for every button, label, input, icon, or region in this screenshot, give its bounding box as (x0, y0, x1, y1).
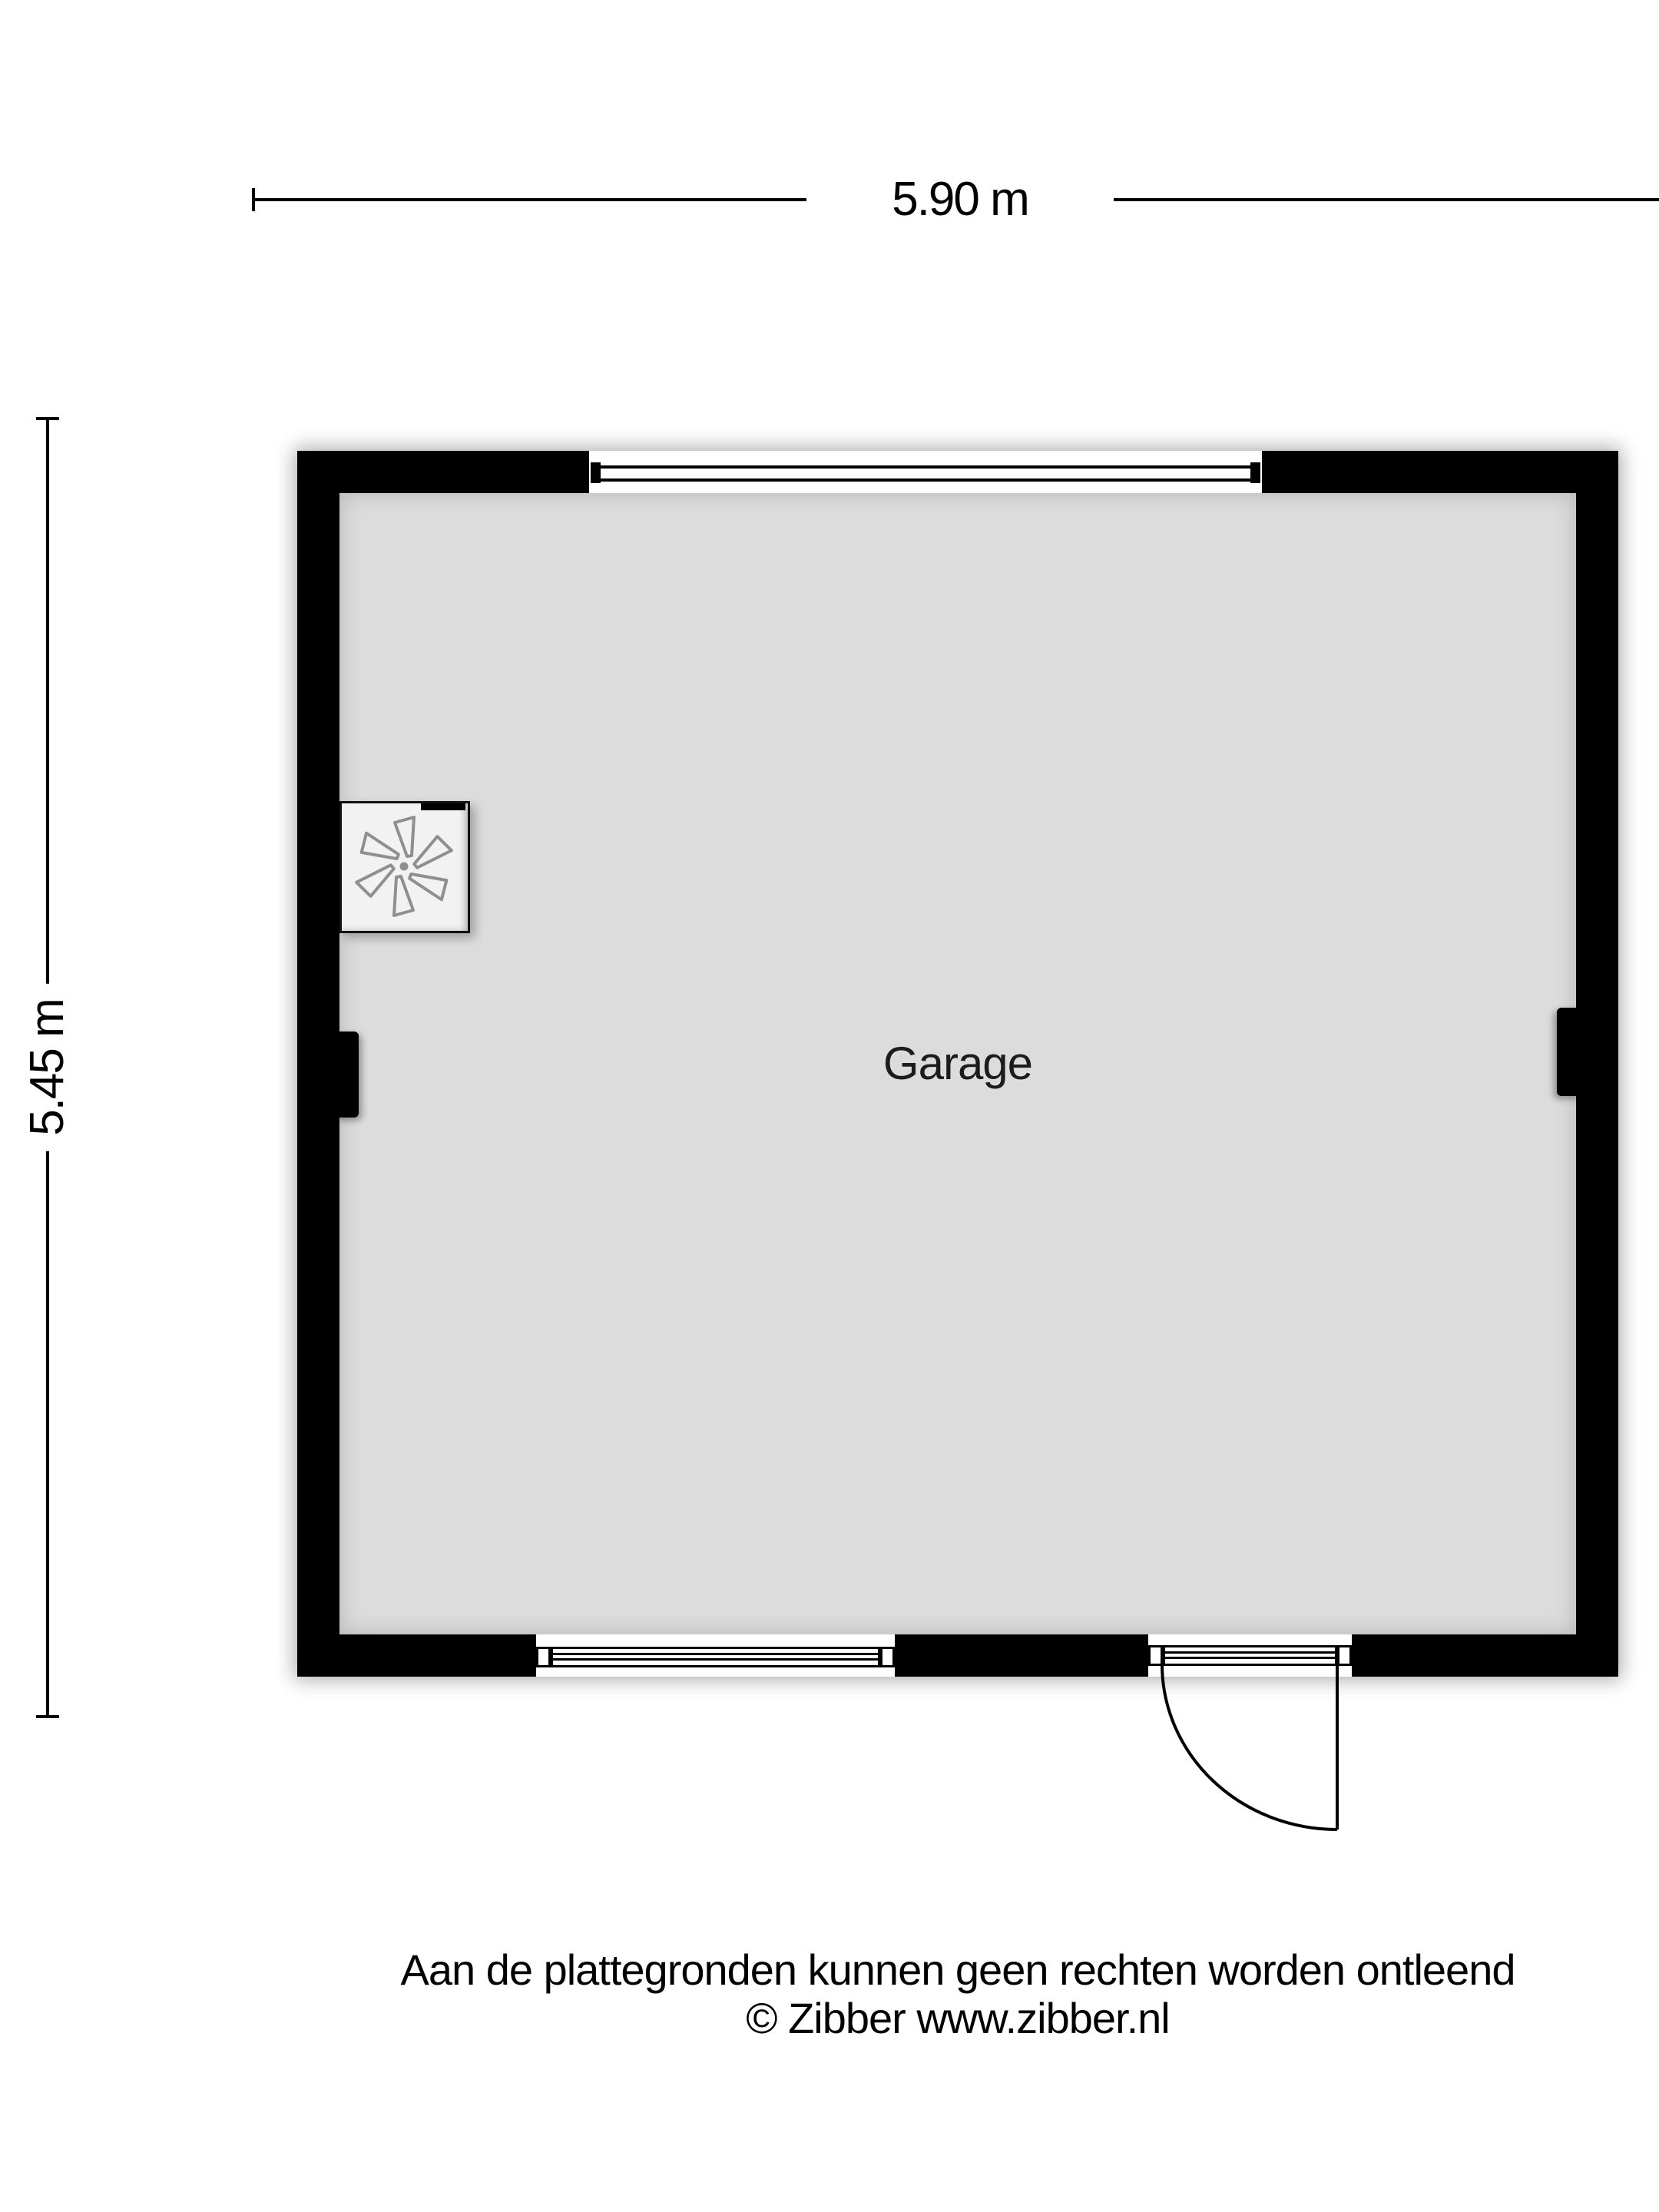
bottom-window (536, 1634, 895, 1677)
footer-disclaimer: Aan de plattegronden kunnen geen rechten… (297, 1946, 1618, 1995)
window-glass (601, 465, 1250, 482)
window-glass (551, 1647, 880, 1667)
fan-unit (339, 801, 470, 933)
floor-plan-page: 5.90 m 5.45 m (0, 0, 1659, 2212)
door-frame-line (1165, 1657, 1335, 1659)
dimension-tick (36, 417, 59, 420)
window-post (880, 1647, 895, 1667)
entry-door (1148, 1634, 1352, 1677)
glass-line (553, 1658, 878, 1661)
door-post (1148, 1645, 1163, 1666)
door-frame (1163, 1645, 1337, 1666)
footer-copyright: © Zibber www.zibber.nl (297, 1995, 1618, 2043)
dimension-tick (36, 1715, 59, 1718)
dimension-width-label: 5.90 m (806, 174, 1114, 225)
dimension-tick (252, 188, 255, 211)
door-frame-line (1165, 1651, 1335, 1654)
footer: Aan de plattegronden kunnen geen rechten… (297, 1946, 1618, 2042)
glass-line (553, 1653, 878, 1655)
top-window (589, 451, 1262, 493)
window-post (536, 1647, 551, 1667)
door-post (1337, 1645, 1352, 1666)
window-end-cap (591, 462, 601, 483)
room-label: Garage (339, 1041, 1576, 1087)
fan-icon (343, 805, 465, 928)
window-end-cap (1250, 462, 1260, 483)
garage-outline-walls: Garage (297, 451, 1618, 1677)
dimension-height-label: 5.45 m (22, 984, 73, 1151)
